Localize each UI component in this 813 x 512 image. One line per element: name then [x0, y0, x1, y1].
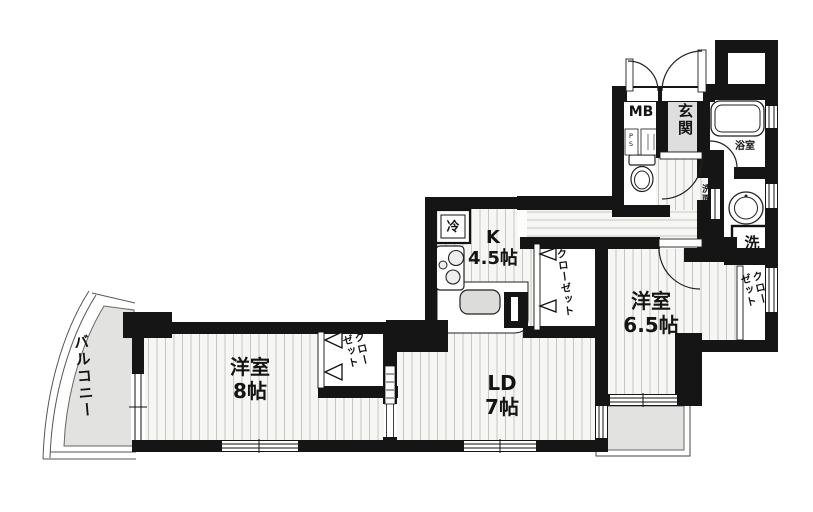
washing-machine-label: 洗	[736, 232, 768, 253]
entry-door-leaf	[698, 50, 706, 92]
bedroom65-label: 洋室 6.5帖	[598, 290, 704, 337]
bathroom-label: 浴室	[727, 137, 763, 152]
meter-box-label: MB	[626, 104, 656, 120]
balcony-southeast	[596, 402, 690, 456]
refrigerator-label: 冷	[438, 216, 468, 235]
kitchen-sink-icon	[460, 290, 500, 314]
mb-door-leaf	[626, 59, 633, 91]
bathtub-icon	[711, 101, 764, 136]
washroom-label: 洗面脱衣	[699, 184, 712, 224]
toilet-door-leaf	[660, 152, 702, 159]
door-openings	[627, 88, 703, 101]
bedroom8-label: 洋室 8帖	[195, 356, 305, 403]
pipe-space-label: PS	[627, 132, 635, 148]
sliding-door	[385, 366, 395, 437]
bedroom65-door-leaf	[659, 239, 702, 247]
living-dining-label: LD 7帖	[452, 372, 552, 419]
toilet-icon	[629, 155, 655, 192]
floor-plan: バルコニー 洋室 8帖 LD 7帖 K 4.5帖 洋室 6.5帖 クロー ゼット…	[0, 0, 813, 512]
washbasin-icon	[729, 192, 763, 224]
floor-plan-drawing	[0, 0, 813, 512]
entrance-label: 玄関	[675, 103, 696, 137]
